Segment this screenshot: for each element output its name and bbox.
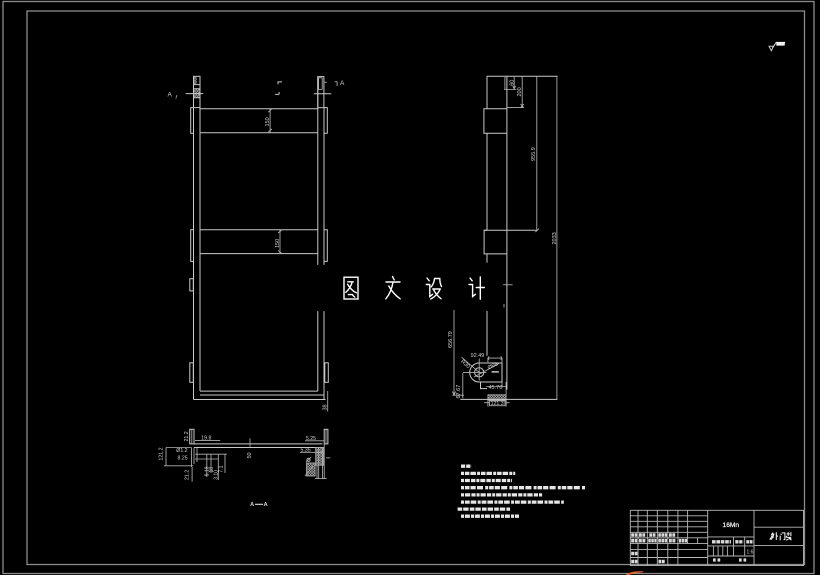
svg-text:67.67: 67.67 (456, 385, 462, 399)
svg-text:656.79: 656.79 (448, 331, 454, 348)
svg-text:7.1: 7.1 (219, 465, 225, 472)
svg-text:A: A (340, 80, 345, 87)
svg-text:45.76: 45.76 (489, 385, 503, 391)
svg-text:121.2: 121.2 (159, 447, 165, 460)
svg-text:60: 60 (510, 80, 516, 86)
svg-text:200: 200 (517, 87, 523, 96)
svg-text:150: 150 (265, 117, 271, 126)
svg-text:92.49: 92.49 (471, 353, 485, 359)
svg-text:955.9: 955.9 (531, 147, 537, 161)
svg-text:1:6: 1:6 (747, 549, 754, 555)
svg-text:38: 38 (323, 404, 329, 410)
svg-text:121.3: 121.3 (491, 401, 504, 407)
svg-text:21.2: 21.2 (184, 431, 190, 441)
svg-text:150: 150 (275, 239, 281, 248)
svg-text:16Mn: 16Mn (723, 522, 740, 529)
svg-text:Ø1.2: Ø1.2 (176, 448, 187, 454)
svg-text:A: A (168, 92, 173, 99)
svg-text:2033: 2033 (552, 232, 558, 244)
svg-text:21.2: 21.2 (185, 470, 191, 480)
svg-text:8.25: 8.25 (178, 455, 188, 461)
svg-text:5.25: 5.25 (306, 436, 316, 442)
svg-text:50: 50 (247, 452, 253, 458)
